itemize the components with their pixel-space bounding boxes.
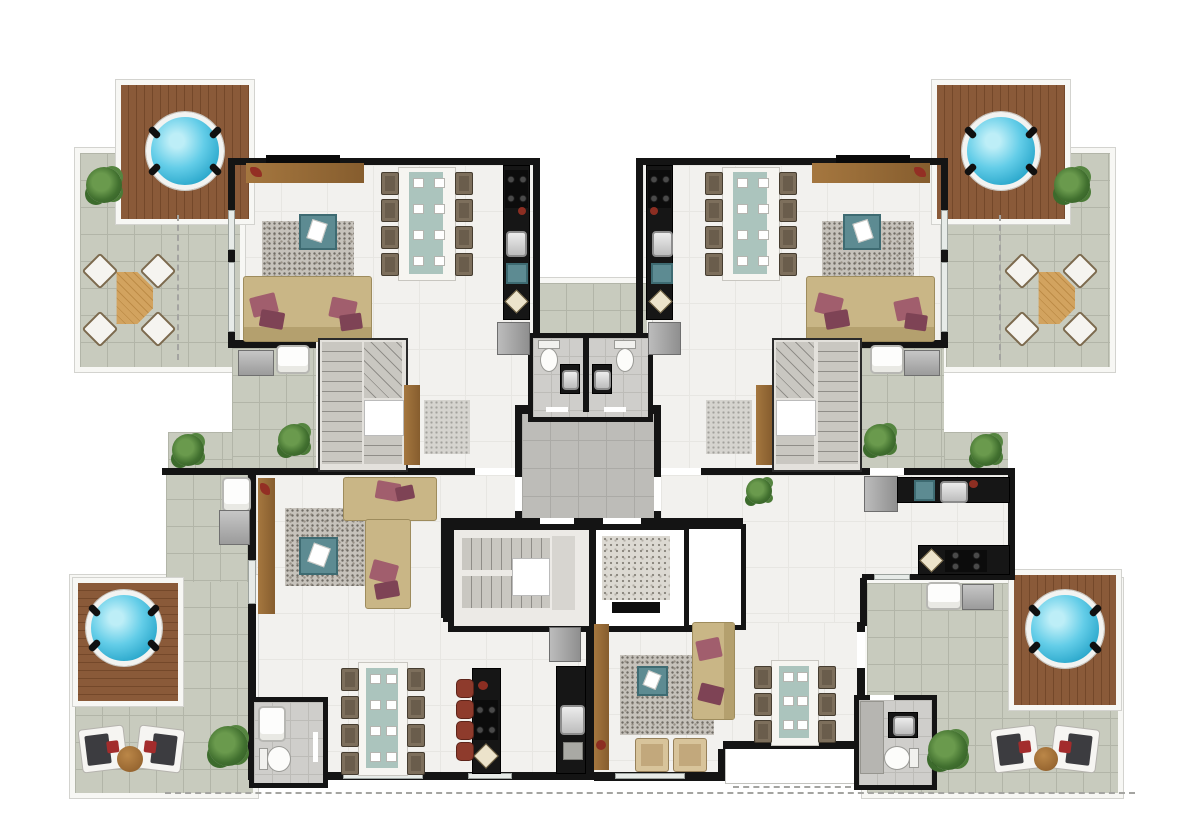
accent-table <box>843 214 881 250</box>
place-setting <box>413 204 424 214</box>
stair-landing <box>364 400 404 436</box>
stair-flight <box>364 436 402 464</box>
book <box>306 219 327 243</box>
place-setting <box>783 720 794 730</box>
wall-segment <box>860 578 867 626</box>
sofa-back <box>724 623 734 719</box>
hot-tub-bottom-right <box>1026 590 1104 668</box>
place-setting <box>434 204 445 214</box>
stair-landing <box>512 558 550 596</box>
dining-chair <box>407 696 425 719</box>
dining-chair <box>818 666 836 689</box>
cutting-board <box>914 480 935 501</box>
laundry-sink <box>276 345 310 374</box>
plant <box>86 167 122 203</box>
door-gap <box>654 477 661 511</box>
fridge <box>864 476 898 512</box>
kitchen-sink <box>940 481 968 503</box>
hot-tub-step <box>87 638 101 652</box>
dining-chair <box>754 693 772 716</box>
stair-flight <box>322 342 362 464</box>
window <box>941 262 948 332</box>
sun-lounger <box>134 724 185 773</box>
dining-chair <box>407 724 425 747</box>
door-gap <box>604 407 626 412</box>
sofa-l-horizontal <box>343 477 437 521</box>
plant <box>1054 167 1090 203</box>
sun-lounger <box>1049 724 1100 773</box>
place-setting <box>758 204 769 214</box>
sofa <box>243 276 372 342</box>
window <box>615 773 685 779</box>
place-setting <box>434 178 445 188</box>
hot-tub-step <box>146 603 160 617</box>
stair-flight <box>818 342 858 464</box>
hot-tub-step <box>1088 603 1102 617</box>
shaft-room <box>684 524 746 630</box>
window <box>228 210 235 250</box>
floor-plan <box>0 0 1200 839</box>
wardrobe-door <box>756 385 772 465</box>
plant <box>278 424 310 456</box>
dining-chair <box>455 253 473 276</box>
toilet-bowl <box>267 746 291 772</box>
place-setting <box>783 696 794 706</box>
throw-pillow <box>695 637 723 662</box>
property-line <box>165 792 1135 794</box>
washing-machine <box>219 510 250 545</box>
place-setting <box>797 672 808 682</box>
dining-chair <box>407 752 425 775</box>
plant <box>928 730 968 770</box>
side-table <box>117 746 143 772</box>
window <box>228 262 235 332</box>
vanity-sink <box>258 706 286 742</box>
hot-tub-step <box>147 162 161 176</box>
bar-stool <box>456 742 474 761</box>
throw-pillow <box>374 580 400 600</box>
washing-machine <box>904 350 940 376</box>
vanity-sink <box>893 716 915 736</box>
vanity-sink <box>562 370 579 390</box>
dining-chair <box>455 199 473 222</box>
armchair <box>635 738 669 772</box>
place-setting <box>737 204 748 214</box>
hot-tub-top-right <box>962 112 1040 190</box>
cooktop <box>474 700 498 740</box>
unit-staircase <box>772 338 862 472</box>
hot-tub-top-left <box>146 112 224 190</box>
toilet-bowl <box>884 746 910 770</box>
plant <box>172 434 204 466</box>
stair-winders <box>776 342 814 398</box>
bar-stool <box>456 679 474 698</box>
window <box>248 560 256 604</box>
dining-chair <box>779 226 797 249</box>
accent-table <box>637 666 668 696</box>
bar-stool <box>456 700 474 719</box>
dining-chair <box>779 172 797 195</box>
plant <box>864 424 896 456</box>
door-gap <box>870 468 904 475</box>
window <box>874 574 910 580</box>
armchair <box>673 738 707 772</box>
stair-winders <box>364 342 402 398</box>
toilet-bowl <box>616 348 634 372</box>
dining-chair <box>341 696 359 719</box>
wall-segment <box>583 333 589 412</box>
kitchen-sink <box>506 231 527 257</box>
throw-pillow <box>395 484 416 501</box>
vanity-sink <box>594 370 611 390</box>
dining-chair <box>754 720 772 743</box>
balcony <box>725 749 860 784</box>
dining-chair <box>705 253 723 276</box>
dining-chair <box>341 724 359 747</box>
accent-table <box>299 214 337 250</box>
projection-line <box>177 215 179 360</box>
dining-chair <box>779 199 797 222</box>
plant <box>970 434 1002 466</box>
dining-chair <box>705 172 723 195</box>
cooktop <box>505 170 528 208</box>
cutting-board <box>506 263 528 284</box>
side-table <box>1034 747 1058 771</box>
sofa-l-vertical <box>365 519 411 609</box>
dining-chair <box>705 226 723 249</box>
toilet-bowl <box>540 348 558 372</box>
elevator <box>590 524 694 632</box>
dining-chair <box>455 226 473 249</box>
place-setting <box>370 674 381 684</box>
spice-jars <box>478 681 488 690</box>
dining-chair <box>779 253 797 276</box>
kitchen-sink <box>652 231 673 257</box>
laundry-sink <box>870 345 904 374</box>
door-gap <box>857 632 865 668</box>
place-setting <box>386 752 397 762</box>
dining-chair <box>818 720 836 743</box>
cutting-board <box>651 263 673 284</box>
place-setting <box>413 256 424 266</box>
spice-jars <box>518 207 526 215</box>
bar-stool <box>456 721 474 740</box>
stair-flight <box>776 436 814 464</box>
place-setting <box>737 178 748 188</box>
elevator-threshold <box>612 602 660 613</box>
tv-console <box>812 163 930 183</box>
place-setting <box>434 230 445 240</box>
laundry-sink <box>222 477 251 512</box>
door-gap <box>475 468 515 475</box>
sofa <box>692 622 735 720</box>
fridge <box>497 322 530 355</box>
place-setting <box>386 674 397 684</box>
place-setting <box>797 720 808 730</box>
hall-rug <box>424 400 470 454</box>
cooktop <box>945 550 987 572</box>
cooktop <box>648 170 671 208</box>
place-setting <box>758 230 769 240</box>
book <box>852 219 873 243</box>
book <box>643 670 662 690</box>
place-setting <box>370 700 381 710</box>
spice-jars <box>969 480 978 488</box>
tv-console <box>246 163 364 183</box>
main-staircase <box>448 524 595 632</box>
hot-tub-step <box>963 125 977 139</box>
hot-tub-step <box>208 125 222 139</box>
place-setting <box>370 752 381 762</box>
hot-tub-step <box>963 162 977 176</box>
plant <box>208 726 248 766</box>
spice-jars <box>650 207 658 215</box>
place-setting <box>413 178 424 188</box>
fridge <box>549 627 581 662</box>
book <box>307 543 331 568</box>
place-setting <box>737 230 748 240</box>
dining-chair <box>754 666 772 689</box>
projection-line <box>999 215 1001 360</box>
throw-pillow <box>697 682 725 705</box>
laundry-sink <box>926 582 962 610</box>
place-setting <box>783 672 794 682</box>
balcony-edge-dashed <box>733 786 851 788</box>
sofa <box>806 276 935 342</box>
hot-tub-step <box>87 603 101 617</box>
hot-tub-step <box>1024 125 1038 139</box>
wall-segment <box>718 749 725 777</box>
place-setting <box>386 700 397 710</box>
door-gap <box>546 407 568 412</box>
dining-chair <box>407 668 425 691</box>
dining-chair <box>381 199 399 222</box>
door-gap <box>515 477 522 511</box>
wall-segment <box>586 622 594 780</box>
decor-red <box>596 740 606 750</box>
dining-chair <box>341 752 359 775</box>
stair-landing <box>552 536 575 610</box>
tv <box>266 155 340 163</box>
place-setting <box>413 230 424 240</box>
washing-machine <box>238 350 274 376</box>
accent-table <box>299 537 338 575</box>
plant <box>746 478 772 504</box>
dining-chair <box>341 668 359 691</box>
door-gap <box>313 732 318 762</box>
place-setting <box>737 256 748 266</box>
hot-tub-step <box>147 125 161 139</box>
hall-rug <box>706 400 752 454</box>
dining-chair <box>705 199 723 222</box>
place-setting <box>758 178 769 188</box>
sun-lounger <box>989 724 1040 773</box>
hot-tub-step <box>1027 603 1041 617</box>
stair-landing <box>776 400 816 436</box>
dining-chair <box>381 172 399 195</box>
place-setting <box>386 726 397 736</box>
place-setting <box>758 256 769 266</box>
hot-tub-bottom-left <box>86 590 162 666</box>
place-setting <box>797 696 808 706</box>
hallway <box>522 412 654 518</box>
dining-chair <box>381 226 399 249</box>
place-setting <box>370 726 381 736</box>
elevator-floor <box>602 536 670 600</box>
sideboard <box>258 478 275 614</box>
shower <box>860 701 884 774</box>
washing-machine <box>962 584 994 610</box>
fridge <box>648 322 681 355</box>
throw-pillow <box>904 313 928 332</box>
dining-chair <box>381 253 399 276</box>
dining-chair <box>818 693 836 716</box>
wardrobe-door <box>404 385 420 465</box>
kitchen-sink <box>560 705 585 735</box>
tv <box>836 155 910 163</box>
window <box>941 210 948 250</box>
door-gap <box>661 468 701 475</box>
dining-chair <box>455 172 473 195</box>
unit-staircase <box>318 338 408 472</box>
counter-tray <box>563 742 583 760</box>
toilet-tank <box>909 748 919 768</box>
place-setting <box>434 256 445 266</box>
throw-pillow <box>339 313 363 332</box>
hot-tub-step <box>1027 640 1041 654</box>
door-gap <box>870 695 894 700</box>
